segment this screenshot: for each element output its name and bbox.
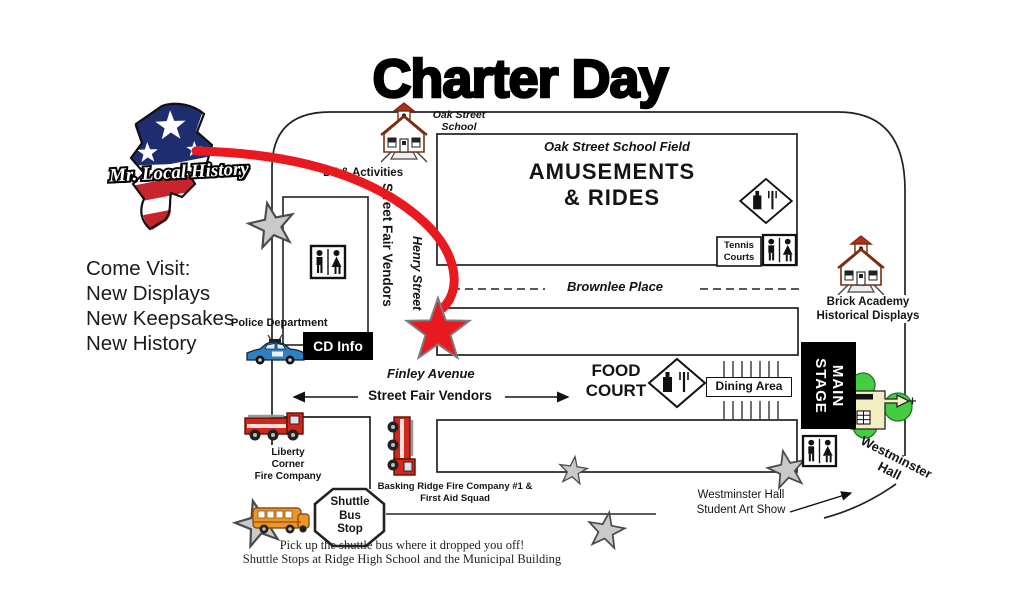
liberty-corner-label: Liberty Corner Fire Company xyxy=(240,447,336,483)
brick-academy-label: Brick Academy Historical Displays xyxy=(800,295,936,323)
promo-item: New Keepsakes xyxy=(86,306,234,331)
cd-info-badge: CD Info xyxy=(303,332,373,360)
shuttle-notes: Pick up the shuttle bus where it dropped… xyxy=(202,539,602,566)
finley-avenue-label: Finley Avenue xyxy=(387,367,475,382)
shuttle-line2: Bus xyxy=(317,510,383,524)
food-icon xyxy=(649,359,705,407)
food-court-line1: FOOD xyxy=(584,361,648,381)
cd-info-label: CD Info xyxy=(313,338,363,354)
dining-area-label: Dining Area xyxy=(706,377,792,397)
oak-street-school-label: Oak Street School xyxy=(420,109,498,133)
basking-line2: First Aid Squad xyxy=(372,493,538,505)
main-stage-line1: MAIN xyxy=(829,358,846,414)
lower-block xyxy=(437,420,797,472)
basking-ridge-label: Basking Ridge Fire Company #1 & First Ai… xyxy=(372,481,538,505)
fire-truck-icon xyxy=(245,413,303,441)
henry-street-label: Henry Street xyxy=(410,236,424,310)
charter-day-map: Mr. Local History Charter Day Come Visit… xyxy=(0,0,1032,616)
brick-academy-line2: Historical Displays xyxy=(800,309,936,323)
shuttle-note1: Pick up the shuttle bus where it dropped… xyxy=(202,539,602,553)
promo-item: New History xyxy=(86,331,234,356)
art-show-line1: Westminster Hall xyxy=(686,488,796,503)
amusements-line1: AMUSEMENTS xyxy=(502,159,722,185)
main-stage-block: MAIN STAGE xyxy=(801,342,856,429)
restroom-icon xyxy=(763,235,796,265)
liberty-line3: Fire Company xyxy=(240,471,336,483)
street-fair-vendors-horizontal: Street Fair Vendors xyxy=(356,388,504,404)
brownlee-place-label: Brownlee Place xyxy=(555,280,675,295)
amusements-label: AMUSEMENTS & RIDES xyxy=(502,159,722,211)
food-court-line2: COURT xyxy=(584,381,648,401)
basking-line1: Basking Ridge Fire Company #1 & xyxy=(372,481,538,493)
schoolhouse-icon xyxy=(838,236,884,295)
oak-street-school-line1: Oak Street xyxy=(420,109,498,121)
main-stage-label: MAIN STAGE xyxy=(812,358,846,414)
school-bus-icon xyxy=(253,508,309,534)
field-label: Oak Street School Field xyxy=(497,140,737,155)
liberty-line1: Liberty xyxy=(240,447,336,459)
main-stage-line2: STAGE xyxy=(812,358,829,414)
tennis-line2: Courts xyxy=(717,252,761,264)
student-art-show-label: Westminster Hall Student Art Show xyxy=(686,488,796,517)
westminster-hall-icon xyxy=(851,373,916,438)
amusements-line2: & RIDES xyxy=(502,185,722,211)
shuttle-stop-label: Shuttle Bus Stop xyxy=(317,496,383,537)
restroom-icon xyxy=(311,246,345,278)
boundary-corner-arc xyxy=(824,484,896,518)
fire-truck-icon-vertical xyxy=(388,417,416,475)
shuttle-line3: Stop xyxy=(317,523,383,537)
art-show-line2: Student Art Show xyxy=(686,503,796,518)
dj-activities-label: DJ & Activities xyxy=(323,167,403,180)
oak-street-school-line2: School xyxy=(420,121,498,133)
food-court-label: FOOD COURT xyxy=(584,361,648,401)
promo-item: New Displays xyxy=(86,281,234,306)
page-title: Charter Day xyxy=(330,48,710,110)
shuttle-note2: Shuttle Stops at Ridge High School and t… xyxy=(202,553,602,567)
tennis-courts-label: Tennis Courts xyxy=(717,240,761,263)
street-fair-vendors-vertical: Street Fair Vendors xyxy=(379,183,395,307)
liberty-line2: Corner xyxy=(240,459,336,471)
middle-block xyxy=(437,308,798,355)
shuttle-line1: Shuttle xyxy=(317,496,383,510)
promo-heading: Come Visit: xyxy=(86,256,234,281)
promo-text: Come Visit: New Displays New Keepsakes N… xyxy=(86,256,234,356)
police-department-label: Police Department xyxy=(231,317,328,330)
tennis-line1: Tennis xyxy=(717,240,761,252)
art-show-arrow xyxy=(790,493,851,512)
restroom-icon xyxy=(803,436,836,466)
brick-academy-line1: Brick Academy xyxy=(800,295,936,309)
